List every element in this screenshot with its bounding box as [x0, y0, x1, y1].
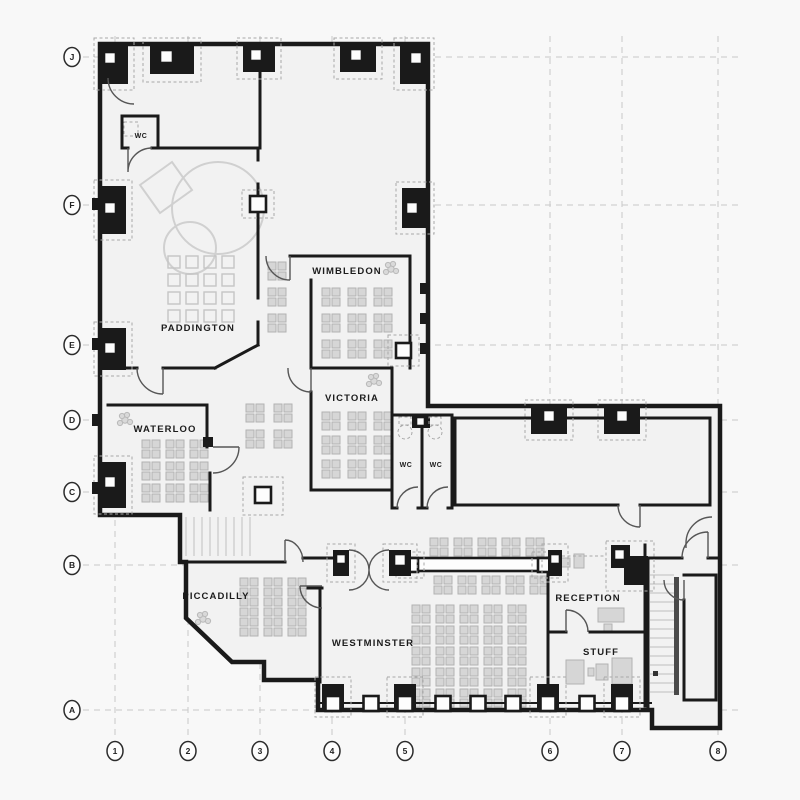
room-label-waterloo: WATERLOO — [134, 424, 197, 435]
svg-text:B: B — [69, 560, 75, 570]
room-label-wc-middle-left: WC — [400, 462, 413, 469]
room-label-wimbledon: WIMBLEDON — [312, 266, 382, 277]
grid-marker-row-a: A — [64, 701, 80, 720]
grid-marker-row-b: B — [64, 556, 80, 575]
room-label-stuff: STUFF — [583, 647, 619, 658]
svg-text:D: D — [69, 415, 75, 425]
grid-marker-row-j: J — [64, 48, 80, 67]
room-label-reception: RECEPTION — [555, 593, 620, 604]
room-label-westminster: WESTMINSTER — [332, 638, 414, 649]
svg-text:C: C — [69, 487, 75, 497]
grid-marker-col-4: 4 — [324, 742, 340, 761]
stair-rail — [674, 577, 679, 695]
svg-text:2: 2 — [186, 746, 191, 756]
grid-marker-col-5: 5 — [397, 742, 413, 761]
grid-marker-row-e: E — [64, 336, 80, 355]
svg-text:1: 1 — [113, 746, 118, 756]
room-label-wc-middle-right: WC — [430, 462, 443, 469]
westminster-north-wall — [411, 558, 548, 571]
grid-marker-col-1: 1 — [107, 742, 123, 761]
grid-marker-col-3: 3 — [252, 742, 268, 761]
svg-text:4: 4 — [330, 746, 335, 756]
stair-arrow — [653, 671, 658, 676]
svg-text:7: 7 — [620, 746, 625, 756]
svg-text:J: J — [70, 52, 75, 62]
grid-marker-col-2: 2 — [180, 742, 196, 761]
room-label-paddington: PADDINGTON — [161, 323, 235, 334]
svg-text:5: 5 — [403, 746, 408, 756]
room-label-wc-northwest: WC — [135, 133, 148, 140]
grid-marker-col-8: 8 — [710, 742, 726, 761]
svg-text:F: F — [69, 200, 74, 210]
grid-marker-row-c: C — [64, 483, 80, 502]
floor-plan: PADDINGTON WIMBLEDON VICTORIA WATERLOO P… — [0, 0, 800, 800]
svg-text:E: E — [69, 340, 75, 350]
grid-marker-row-f: F — [64, 196, 80, 215]
svg-text:6: 6 — [548, 746, 553, 756]
room-label-piccadilly: PICCADILLY — [182, 591, 249, 602]
room-label-victoria: VICTORIA — [325, 393, 379, 404]
svg-text:8: 8 — [716, 746, 721, 756]
svg-text:3: 3 — [258, 746, 263, 756]
svg-text:A: A — [69, 705, 75, 715]
grid-marker-row-d: D — [64, 411, 80, 430]
grid-marker-col-7: 7 — [614, 742, 630, 761]
grid-marker-col-6: 6 — [542, 742, 558, 761]
